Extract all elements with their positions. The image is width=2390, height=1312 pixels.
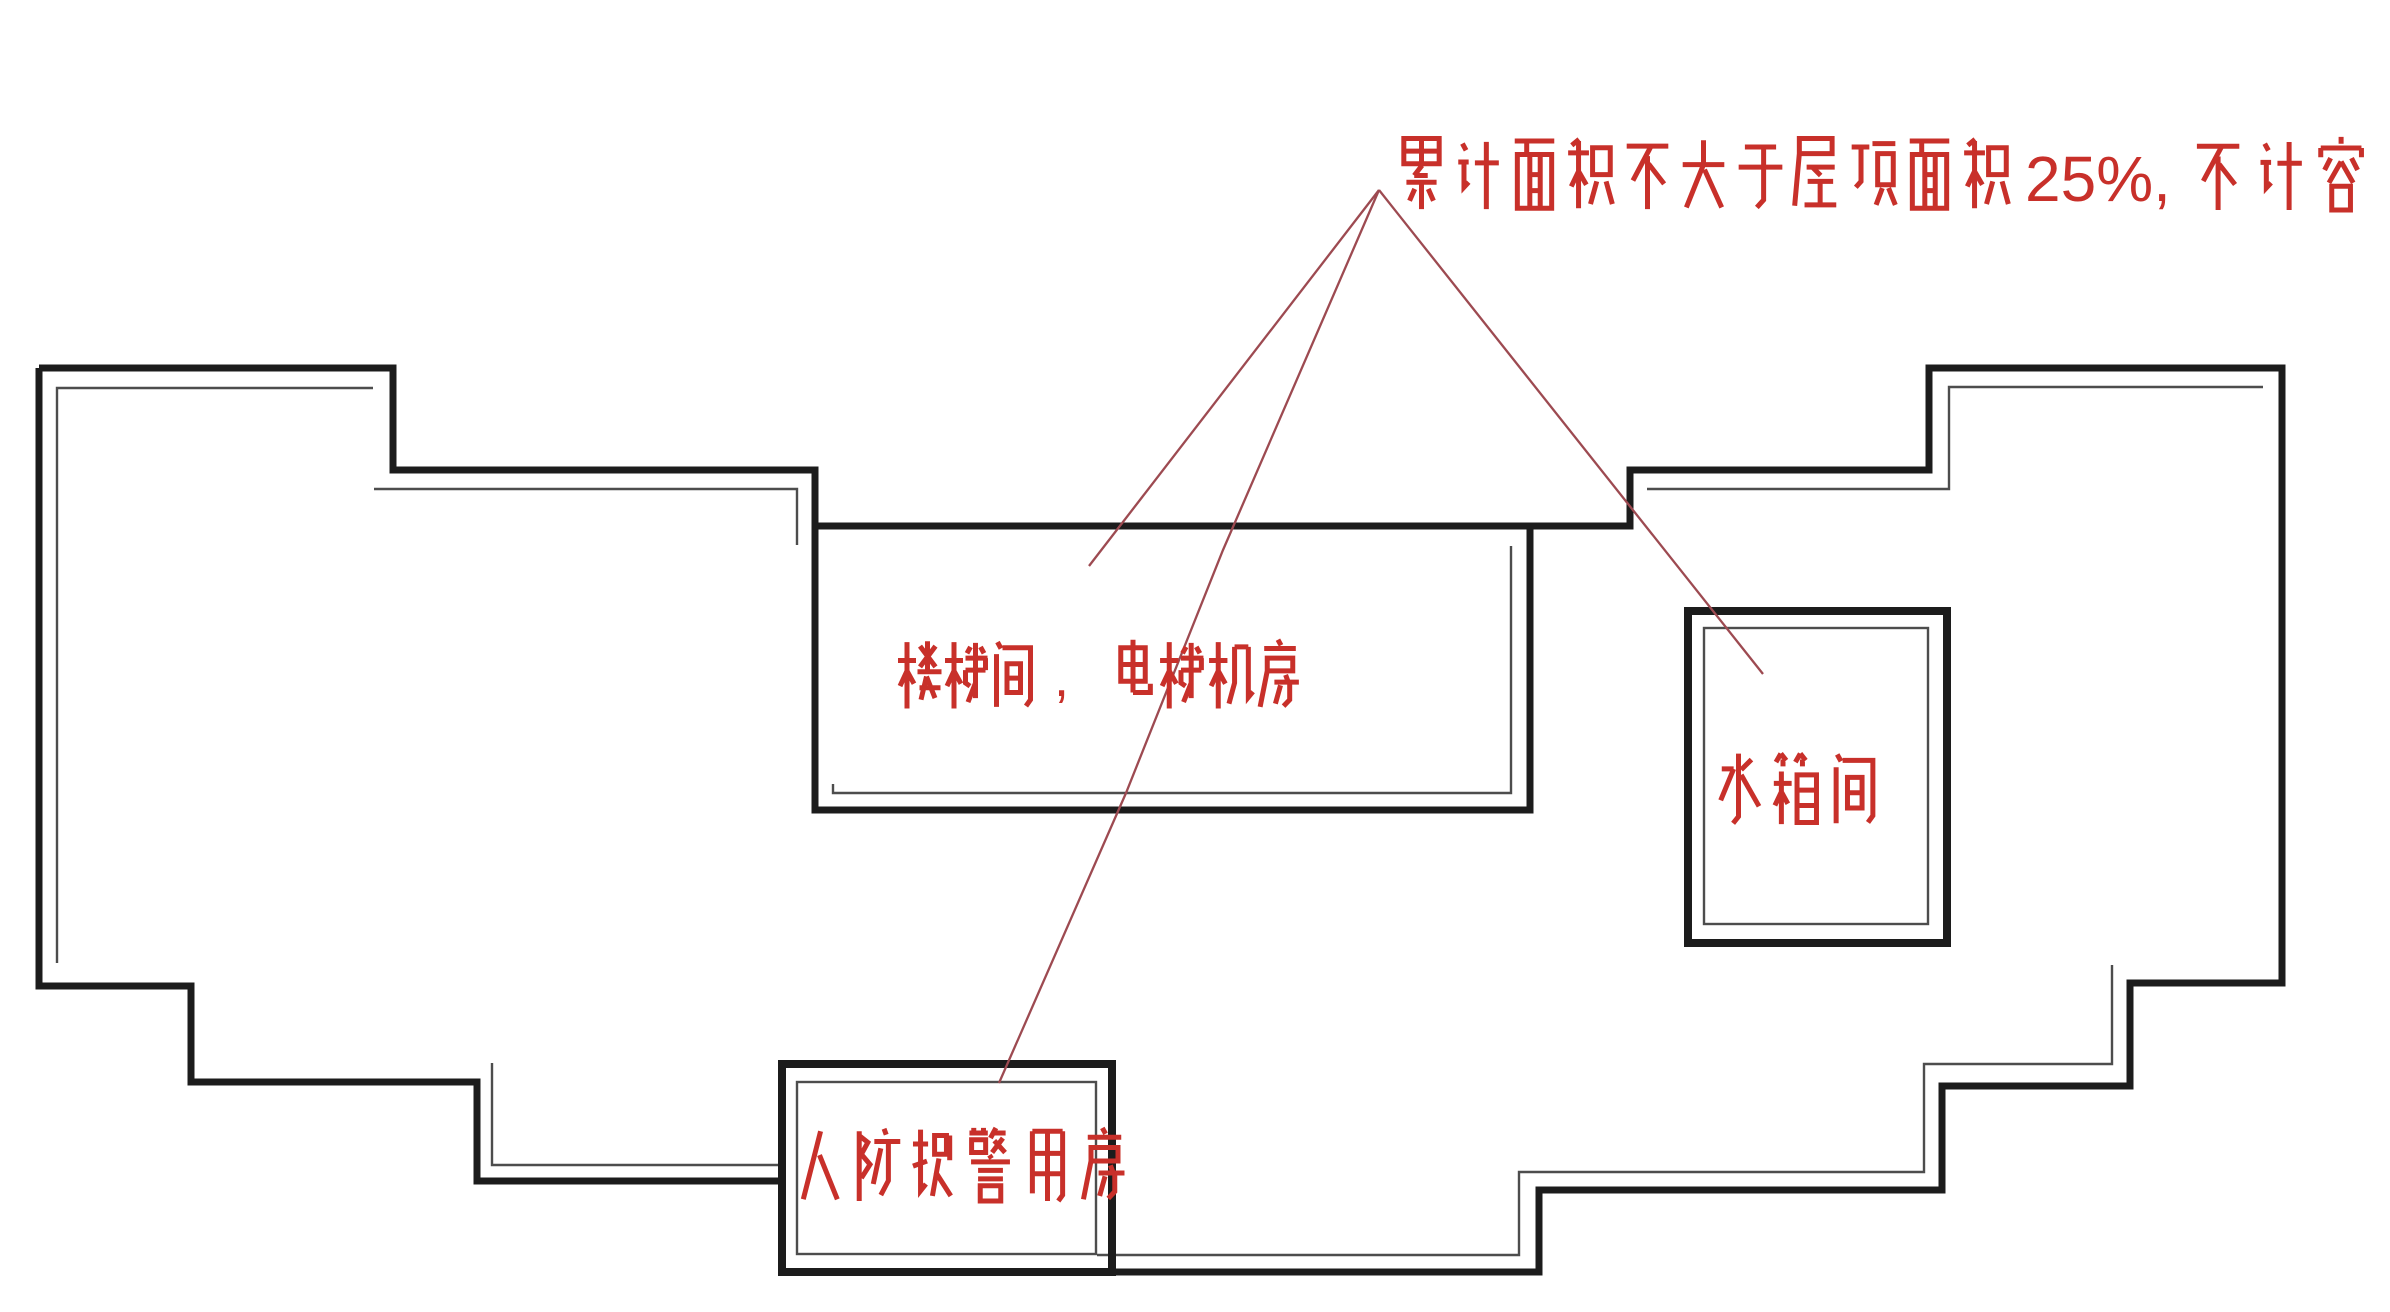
svg-text:25%,: 25%,	[2025, 143, 2171, 215]
svg-text:,: ,	[1054, 648, 1069, 708]
